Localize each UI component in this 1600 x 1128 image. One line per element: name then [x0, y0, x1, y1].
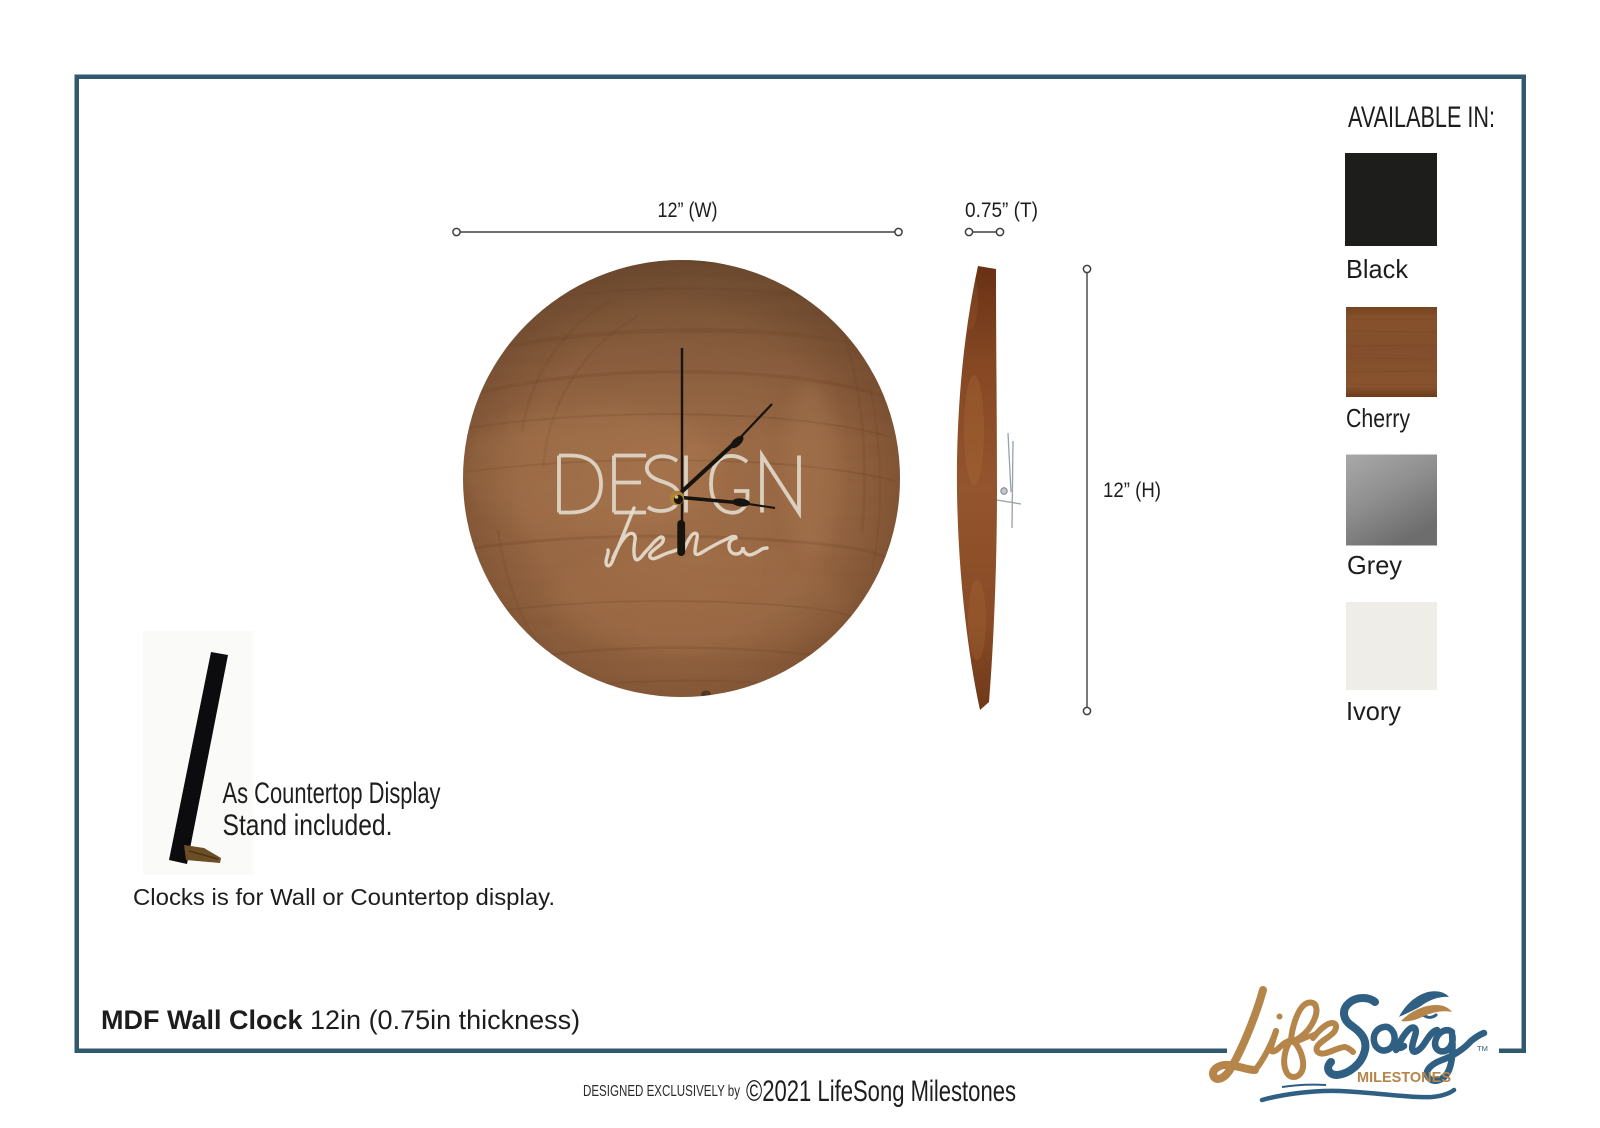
svg-text:12” (H): 12” (H): [1103, 479, 1161, 502]
svg-text:MDF Wall Clock 12in (0.75in th: MDF Wall Clock 12in (0.75in thickness): [101, 1005, 580, 1035]
svg-text:©2021 LifeSong Milestones: ©2021 LifeSong Milestones: [746, 1075, 1016, 1108]
svg-text:AVAILABLE IN:: AVAILABLE IN:: [1348, 101, 1495, 134]
svg-text:Black: Black: [1346, 254, 1409, 284]
svg-text:Clocks is for Wall or Countert: Clocks is for Wall or Countertop display…: [133, 884, 555, 910]
svg-text:Ivory: Ivory: [1346, 696, 1401, 726]
svg-text:Cherry: Cherry: [1346, 403, 1410, 433]
svg-text:As Countertop Display: As Countertop Display: [223, 777, 441, 810]
svg-text:Stand included.: Stand included.: [223, 809, 393, 842]
svg-text:12” (W): 12” (W): [658, 199, 718, 222]
svg-text:DESIGNED EXCLUSIVELY by: DESIGNED EXCLUSIVELY by: [583, 1083, 740, 1100]
svg-text:0.75” (T): 0.75” (T): [965, 199, 1038, 222]
svg-text:TM: TM: [1477, 1044, 1488, 1053]
svg-text:MILESTONES: MILESTONES: [1357, 1069, 1451, 1086]
svg-text:Grey: Grey: [1347, 550, 1402, 580]
